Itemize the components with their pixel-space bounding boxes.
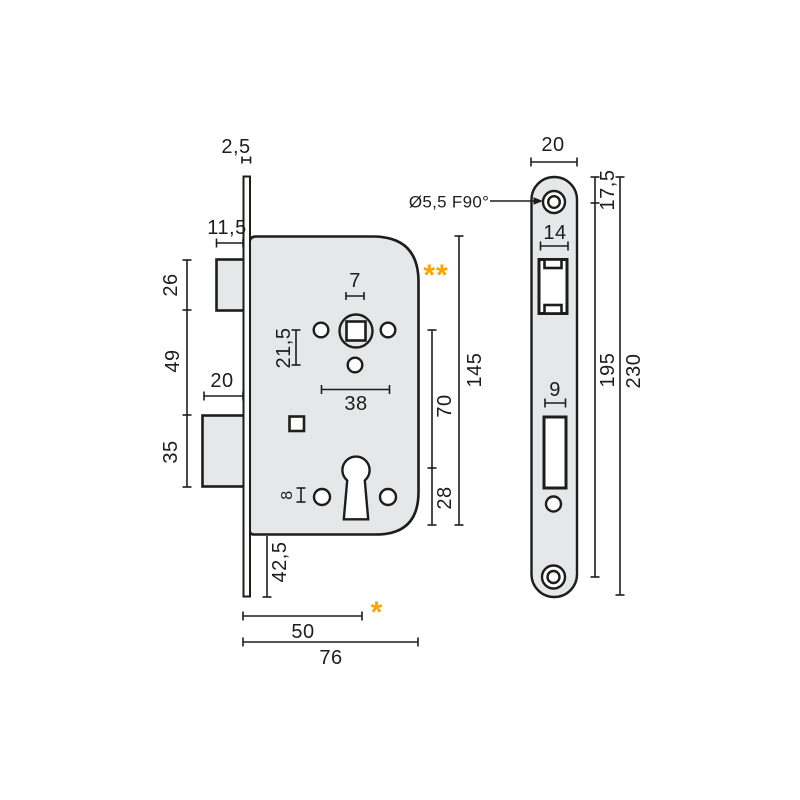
label-backset: 50 bbox=[291, 622, 314, 642]
spindle-square-hole bbox=[347, 322, 366, 341]
dim-case-height bbox=[455, 236, 464, 525]
deadbolt-follower-hole bbox=[290, 417, 305, 432]
label-front-plate-height: 230 bbox=[624, 354, 644, 389]
case-hole-below-spindle bbox=[348, 358, 363, 373]
latch-cutout-notch-bottom bbox=[545, 305, 562, 314]
latch-bolt bbox=[217, 260, 247, 311]
label-case-height: 145 bbox=[465, 353, 485, 388]
label-hole-diameter: 8 bbox=[280, 490, 296, 499]
label-spindle-to-keyhole: 70 bbox=[435, 394, 455, 417]
screw-hole-top-inner bbox=[548, 196, 560, 208]
label-keyhole-to-bottom: 28 bbox=[435, 486, 455, 509]
label-front-screw-spacing: 195 bbox=[598, 353, 618, 388]
dim-front-plate-width bbox=[531, 158, 577, 167]
label-front-bolt-cutout-width: 9 bbox=[549, 380, 561, 400]
label-front-top-to-screw: 17,5 bbox=[598, 170, 618, 211]
deadbolt-cutout bbox=[544, 417, 566, 488]
dim-left-chain bbox=[183, 260, 192, 487]
label-deadbolt-protrusion: 20 bbox=[210, 371, 233, 391]
side-view bbox=[203, 177, 419, 597]
label-front-latch-cutout-width: 14 bbox=[543, 223, 566, 243]
label-case-depth: 76 bbox=[319, 648, 342, 668]
label-deadbolt-height: 35 bbox=[161, 440, 181, 463]
footnote-single-asterisk: * bbox=[371, 598, 384, 628]
case-hole-left bbox=[314, 323, 329, 338]
label-latch-height: 26 bbox=[161, 273, 181, 296]
drawing-canvas: 2,5 11,5 26 49 20 35 7 21,5 38 8 42,5 50… bbox=[0, 0, 800, 800]
label-latch-protrusion: 11,5 bbox=[207, 218, 246, 238]
label-front-plate-width: 20 bbox=[541, 135, 564, 155]
countersink-leader-arrow bbox=[490, 197, 543, 205]
label-countersink-spec: Ø5,5 F90° bbox=[409, 194, 489, 211]
faceplate-edge bbox=[244, 177, 251, 597]
label-case-bottom-offset: 42,5 bbox=[270, 542, 290, 583]
dim-case-depth bbox=[243, 638, 418, 647]
label-spindle-hole-width: 7 bbox=[349, 271, 361, 291]
dim-backset bbox=[243, 612, 362, 621]
keyhole bbox=[342, 457, 369, 520]
label-plate-thickness: 2,5 bbox=[221, 137, 250, 157]
footnote-double-asterisk: ** bbox=[423, 261, 448, 291]
cylinder-hole bbox=[546, 497, 561, 512]
screw-hole-bottom-inner bbox=[548, 571, 560, 583]
case-hole-right bbox=[381, 323, 396, 338]
lock-drawing bbox=[0, 0, 800, 800]
label-latch-to-deadbolt: 49 bbox=[163, 349, 183, 372]
dim-latch-protrusion bbox=[217, 239, 244, 248]
deadbolt bbox=[203, 416, 247, 487]
keyhole-side-hole-right bbox=[380, 489, 396, 505]
label-hole-spacing: 38 bbox=[344, 394, 367, 414]
label-spindle-offset: 21,5 bbox=[274, 328, 294, 369]
keyhole-side-hole-left bbox=[314, 489, 330, 505]
latch-cutout-notch-top bbox=[545, 260, 562, 269]
dim-deadbolt-protrusion bbox=[204, 392, 243, 401]
